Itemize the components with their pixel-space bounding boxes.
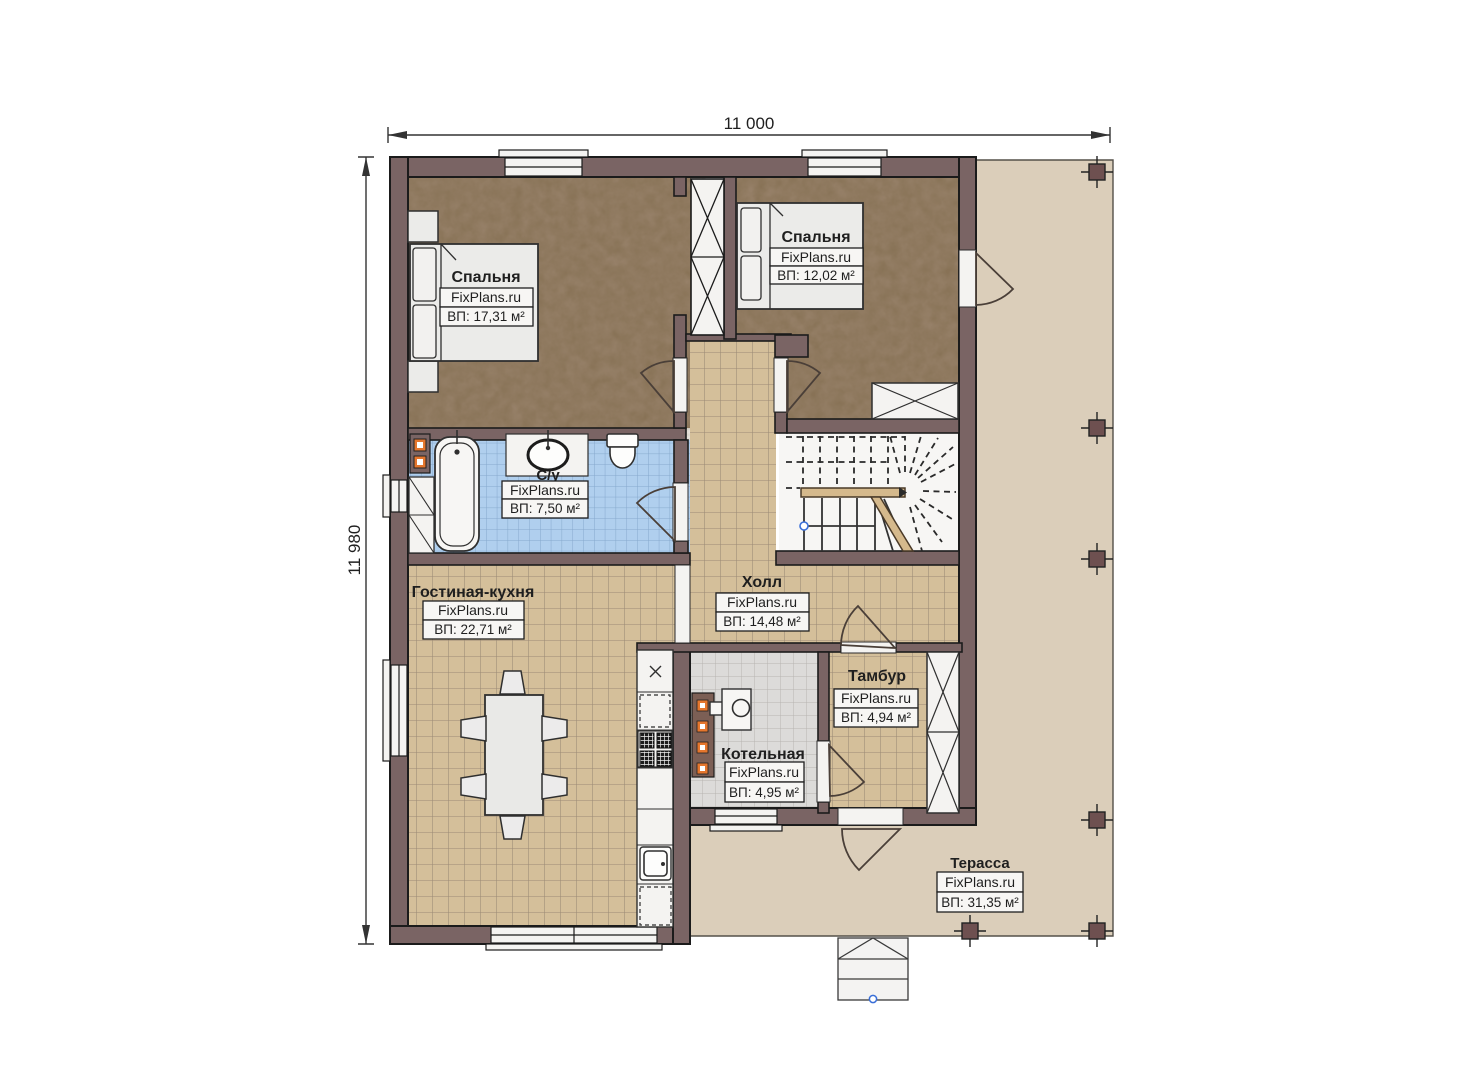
svg-text:FixPlans.ru: FixPlans.ru (781, 249, 851, 265)
svg-text:FixPlans.ru: FixPlans.ru (438, 602, 508, 618)
svg-text:FixPlans.ru: FixPlans.ru (945, 874, 1015, 890)
svg-text:ВП: 14,48 м²: ВП: 14,48 м² (723, 614, 801, 629)
svg-text:Тамбур: Тамбур (848, 668, 906, 685)
svg-text:FixPlans.ru: FixPlans.ru (451, 289, 521, 305)
svg-text:ВП: 17,31 м²: ВП: 17,31 м² (447, 309, 525, 324)
svg-text:ВП: 12,02 м²: ВП: 12,02 м² (777, 268, 855, 283)
svg-text:ВП: 31,35 м²: ВП: 31,35 м² (941, 895, 1019, 910)
svg-text:Терасса: Терасса (950, 855, 1010, 872)
svg-text:ВП: 4,94 м²: ВП: 4,94 м² (841, 710, 912, 725)
svg-text:Спальня: Спальня (781, 229, 850, 246)
svg-text:FixPlans.ru: FixPlans.ru (510, 482, 580, 498)
svg-text:Гостиная-кухня: Гостиная-кухня (412, 584, 535, 601)
svg-text:Котельная: Котельная (721, 746, 805, 763)
svg-text:FixPlans.ru: FixPlans.ru (727, 594, 797, 610)
svg-text:ВП: 4,95 м²: ВП: 4,95 м² (729, 785, 800, 800)
svg-text:ВП: 7,50 м²: ВП: 7,50 м² (510, 501, 581, 516)
svg-text:11 000: 11 000 (724, 114, 775, 133)
svg-text:FixPlans.ru: FixPlans.ru (729, 764, 799, 780)
svg-text:Спальня: Спальня (451, 269, 520, 286)
svg-text:11 980: 11 980 (345, 525, 364, 576)
svg-text:ВП: 22,71 м²: ВП: 22,71 м² (434, 622, 512, 637)
svg-text:Холл: Холл (742, 574, 782, 591)
svg-text:FixPlans.ru: FixPlans.ru (841, 690, 911, 706)
